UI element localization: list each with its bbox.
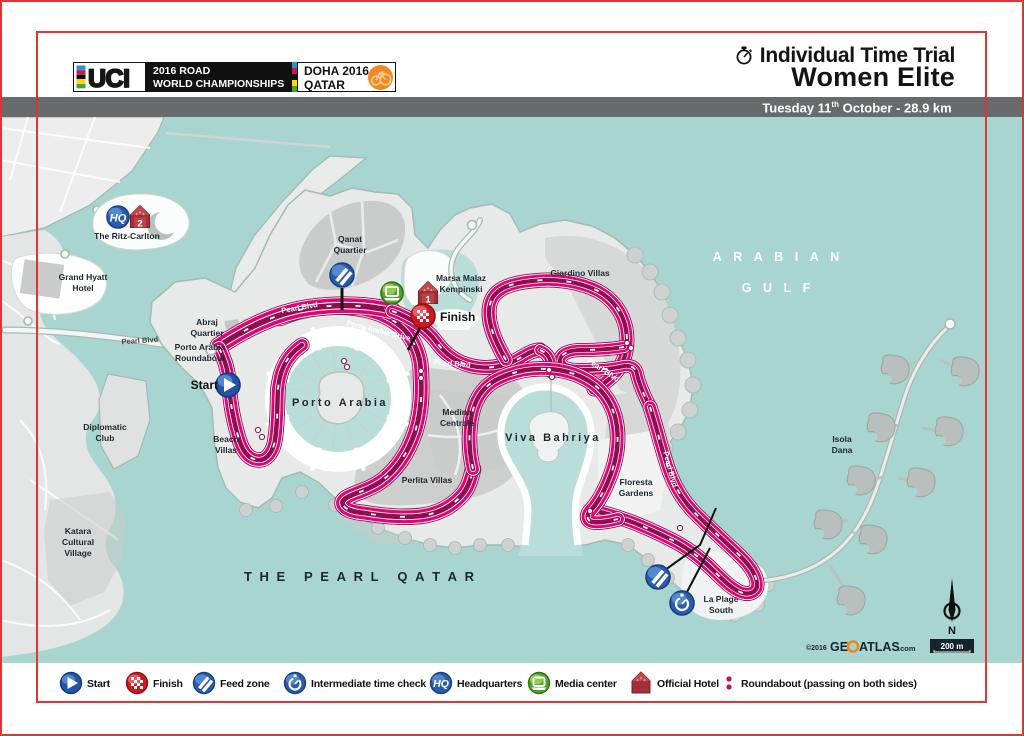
svg-text:Kempinski: Kempinski bbox=[440, 284, 483, 294]
svg-text:Club: Club bbox=[96, 433, 115, 443]
svg-text:GE: GE bbox=[830, 640, 848, 654]
svg-text:T H E P E A R L Q A T A R: T H E P E A R L Q A T A R bbox=[244, 569, 476, 584]
svg-text:Finish: Finish bbox=[440, 310, 475, 324]
svg-text:Roundabout (passing on both si: Roundabout (passing on both sides) bbox=[741, 678, 917, 690]
svg-text:Cultural: Cultural bbox=[62, 537, 94, 547]
svg-text:Feed zone: Feed zone bbox=[220, 678, 270, 690]
svg-text:Medina: Medina bbox=[442, 407, 472, 417]
svg-text:HQ: HQ bbox=[110, 213, 127, 225]
svg-text:Gardens: Gardens bbox=[619, 488, 654, 498]
svg-text:Dana: Dana bbox=[832, 445, 853, 455]
svg-text:ATLAS: ATLAS bbox=[859, 640, 900, 654]
svg-text:Headquarters: Headquarters bbox=[457, 678, 523, 690]
svg-text:2: 2 bbox=[137, 219, 142, 230]
svg-text:Porto Arabia: Porto Arabia bbox=[292, 397, 388, 409]
svg-text:Abraj: Abraj bbox=[196, 317, 218, 327]
svg-text:HQ: HQ bbox=[433, 678, 449, 690]
svg-text:Centrale: Centrale bbox=[440, 418, 474, 428]
svg-text:N: N bbox=[948, 625, 956, 637]
svg-text:A R A B I A N: A R A B I A N bbox=[713, 250, 843, 264]
svg-text:Quartier: Quartier bbox=[333, 245, 367, 255]
svg-text:Intermediate time check: Intermediate time check bbox=[311, 678, 426, 690]
svg-text:UCI: UCI bbox=[88, 65, 130, 91]
svg-text:Diplomatic: Diplomatic bbox=[83, 422, 127, 432]
svg-text:200 m: 200 m bbox=[941, 642, 964, 651]
svg-text:Perlita Villas: Perlita Villas bbox=[402, 475, 453, 485]
svg-text:Villas: Villas bbox=[215, 445, 237, 455]
svg-text:Qanat: Qanat bbox=[338, 234, 362, 244]
svg-text:Marsa Malaz: Marsa Malaz bbox=[436, 273, 486, 283]
svg-text:Media center: Media center bbox=[555, 678, 617, 690]
svg-text:Hotel: Hotel bbox=[72, 283, 93, 293]
svg-text:Grand Hyatt: Grand Hyatt bbox=[59, 272, 108, 282]
svg-text:Floresta: Floresta bbox=[619, 477, 652, 487]
svg-text:La Plage: La Plage bbox=[704, 594, 739, 604]
svg-text:Porto Arabia: Porto Arabia bbox=[175, 342, 226, 352]
svg-text:.com: .com bbox=[898, 644, 916, 653]
svg-text:Viva Bahriya: Viva Bahriya bbox=[505, 432, 601, 444]
svg-text:Katara: Katara bbox=[65, 526, 92, 536]
svg-text:Isola: Isola bbox=[832, 434, 852, 444]
svg-text:Official Hotel: Official Hotel bbox=[657, 678, 719, 690]
svg-text:Giardino Villas: Giardino Villas bbox=[550, 268, 610, 278]
svg-text:Finish: Finish bbox=[153, 678, 183, 690]
svg-text:©2016: ©2016 bbox=[806, 644, 827, 652]
svg-text:The Ritz-Carlton: The Ritz-Carlton bbox=[94, 231, 160, 241]
svg-text:G U L F: G U L F bbox=[742, 281, 814, 295]
svg-text:Start: Start bbox=[87, 678, 111, 690]
svg-text:Beach: Beach bbox=[213, 434, 239, 444]
svg-text:South: South bbox=[709, 605, 733, 615]
svg-text:Quartier: Quartier bbox=[190, 328, 224, 338]
svg-text:Roundabout: Roundabout bbox=[175, 353, 225, 363]
svg-text:Village: Village bbox=[64, 548, 92, 558]
svg-text:Start: Start bbox=[191, 378, 218, 392]
